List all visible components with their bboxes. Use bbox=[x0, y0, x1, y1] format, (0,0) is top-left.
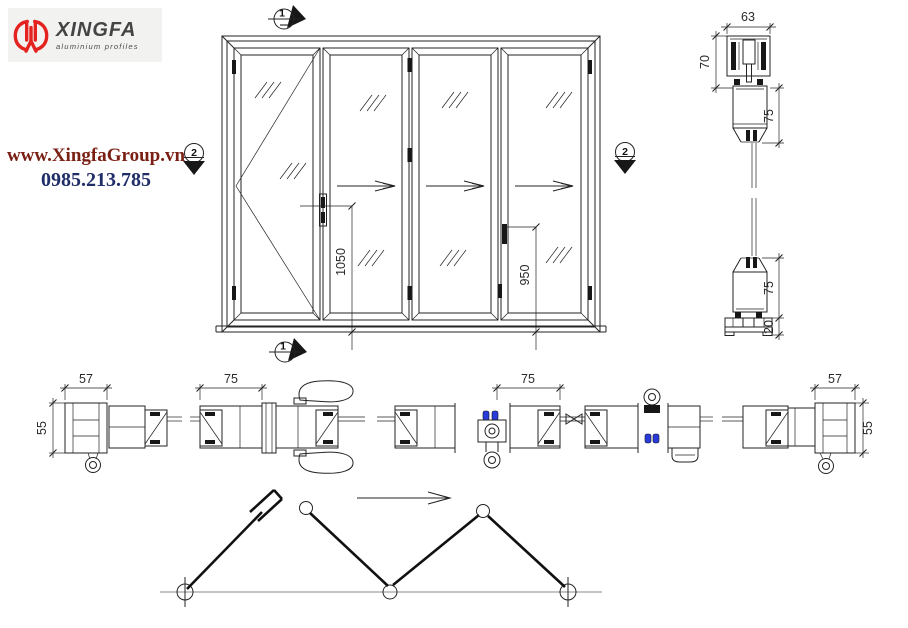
brand-name: XINGFA bbox=[56, 20, 139, 40]
dim-950: 950 bbox=[505, 224, 540, 351]
slide-direction-arrow bbox=[426, 181, 484, 191]
dim-75-mid-label: 75 bbox=[521, 372, 535, 386]
vertical-section-detail: 63 70 bbox=[698, 10, 784, 340]
dim-70-label: 70 bbox=[698, 55, 712, 69]
phone-text: 0985.213.785 bbox=[6, 168, 186, 193]
contact-block: www.XingfaGroup.vn 0985.213.785 bbox=[6, 144, 186, 193]
lever-handle-outer bbox=[294, 381, 353, 404]
dim-950-label: 950 bbox=[518, 265, 532, 286]
glass-section-line bbox=[752, 143, 756, 256]
glass-hatch bbox=[255, 82, 306, 179]
section-marker-bottom: 1 bbox=[269, 338, 307, 362]
dim-55-right-label: 55 bbox=[861, 421, 875, 435]
dim-1050: 1050 bbox=[300, 203, 356, 351]
section-marker-left-number: 2 bbox=[191, 147, 197, 159]
glass-joint-connector bbox=[566, 414, 582, 424]
section-marker-top-number: 1 bbox=[279, 8, 285, 20]
folding-schematic bbox=[160, 490, 602, 607]
section-marker-left: 2 bbox=[183, 144, 205, 176]
door-panel-3 bbox=[412, 48, 498, 320]
right-jamb-profile bbox=[815, 403, 855, 474]
folding-door-drawing: 1050 950 1 1 2 2 bbox=[0, 0, 908, 628]
website-text: www.XingfaGroup.vn bbox=[6, 144, 186, 168]
dim-63: 63 bbox=[721, 10, 776, 34]
dim-20-label: 20 bbox=[762, 320, 776, 334]
slide-direction-arrow bbox=[337, 181, 395, 191]
section-marker-right-number: 2 bbox=[622, 146, 628, 158]
fold-hinge-up-profile bbox=[585, 389, 700, 462]
dim-75-top-label: 75 bbox=[762, 109, 776, 123]
xingfa-logo: XINGFA aluminium profiles bbox=[8, 8, 162, 62]
dim-20: 20 bbox=[762, 320, 784, 340]
dim-75-bottom-label: 75 bbox=[762, 281, 776, 295]
door-panel-1 bbox=[234, 48, 320, 320]
dim-1050-label: 1050 bbox=[334, 248, 348, 276]
left-jamb-profile bbox=[65, 403, 107, 473]
glass-hatch bbox=[358, 95, 386, 266]
dim-70: 70 bbox=[698, 31, 733, 93]
door-panel-4 bbox=[501, 48, 588, 320]
fold-hinge-down-profile bbox=[395, 403, 560, 468]
flush-bolt bbox=[672, 448, 698, 462]
technical-drawing-canvas: 1050 950 1 1 2 2 bbox=[0, 0, 908, 628]
section-marker-right: 2 bbox=[614, 143, 636, 175]
xingfa-emblem-icon bbox=[10, 14, 52, 56]
dim-75-top: 75 bbox=[762, 83, 784, 148]
dim-57-left-label: 57 bbox=[79, 372, 93, 386]
fold-direction-arrow bbox=[357, 492, 450, 504]
dim-63-label: 63 bbox=[741, 10, 755, 24]
door-elevation: 1050 950 bbox=[216, 36, 606, 350]
slide-direction-arrow bbox=[515, 181, 573, 191]
handle-symbol bbox=[250, 490, 282, 521]
brand-tagline: aluminium profiles bbox=[56, 43, 139, 51]
door-panel-2 bbox=[323, 48, 409, 320]
panel4-stile-profile bbox=[743, 406, 815, 448]
dim-75-mid: 75 bbox=[492, 372, 565, 400]
lock-stile-pair-profile bbox=[200, 381, 353, 474]
head-track-profile bbox=[727, 36, 770, 85]
dim-55-right: 55 bbox=[855, 398, 875, 458]
dim-75-left: 75 bbox=[195, 372, 267, 400]
dim-75-left-label: 75 bbox=[224, 372, 238, 386]
section-marker-bottom-number: 1 bbox=[280, 341, 286, 353]
dim-55-left: 55 bbox=[35, 398, 65, 458]
glass-hatch bbox=[546, 92, 572, 263]
lever-handle-inner bbox=[294, 450, 353, 473]
dim-55-left-label: 55 bbox=[35, 421, 49, 435]
section-marker-top: 1 bbox=[268, 5, 306, 29]
dim-57-right-label: 57 bbox=[828, 372, 842, 386]
horizontal-section-detail: 57 55 75 bbox=[35, 372, 875, 474]
glass-hatch bbox=[440, 92, 468, 266]
panel1-stile-profile bbox=[109, 406, 167, 448]
dim-57-left: 57 bbox=[60, 372, 112, 400]
dim-57-right: 57 bbox=[810, 372, 860, 400]
